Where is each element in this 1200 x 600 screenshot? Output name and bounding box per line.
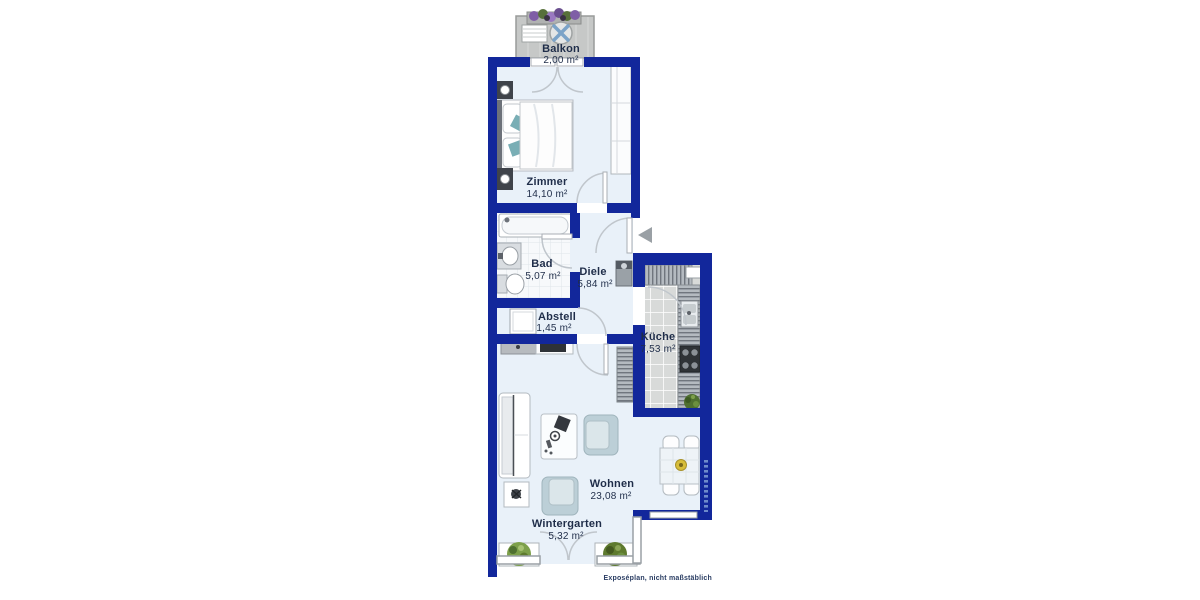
svg-text:Abstell: Abstell	[538, 311, 576, 323]
svg-text:2,00 m²: 2,00 m²	[543, 55, 579, 66]
svg-text:Balkon: Balkon	[542, 43, 580, 55]
plan-caption: Exposéplan, nicht maßstäblich	[604, 575, 713, 582]
room-label-abstell: Abstell 1,45 m²	[536, 311, 576, 334]
svg-text:14,10 m²: 14,10 m²	[526, 189, 568, 200]
balcony-table	[550, 22, 572, 44]
coffee-table-symbol	[541, 414, 577, 459]
kitchen-sink-symbol	[681, 301, 698, 327]
vertical-watermark	[704, 460, 708, 512]
svg-text:Diele: Diele	[579, 266, 606, 278]
entrance-arrow-icon	[638, 227, 652, 243]
washing-machine-symbol	[510, 309, 536, 334]
svg-text:1,45 m²: 1,45 m²	[536, 323, 572, 334]
plant-icon	[684, 394, 700, 410]
hall-cabinet	[616, 261, 632, 286]
floor-plant-box	[504, 482, 529, 507]
floor-plan-svg: Balkon 2,00 m² Zimmer 14,10 m² Bad 5,07 …	[0, 0, 1200, 600]
balcony-bench	[522, 25, 547, 42]
svg-text:Wintergarten: Wintergarten	[532, 518, 602, 530]
wardrobe-symbol	[611, 66, 631, 174]
room-label-balkon: Balkon 2,00 m²	[542, 43, 580, 66]
dining-set	[660, 436, 699, 495]
sofa-symbol	[499, 393, 530, 478]
svg-text:7,53 m²: 7,53 m²	[640, 344, 676, 355]
svg-text:Bad: Bad	[531, 258, 552, 270]
svg-text:Küche: Küche	[641, 331, 676, 343]
sink-symbol	[497, 243, 521, 269]
svg-text:5,32 m²: 5,32 m²	[548, 531, 584, 542]
toilet-symbol	[497, 274, 524, 294]
svg-text:5,07 m²: 5,07 m²	[525, 271, 561, 282]
shelf-unit	[617, 347, 633, 402]
nightstand	[497, 168, 513, 190]
window-symbol	[650, 512, 697, 518]
floorplan-canvas: Balkon 2,00 m² Zimmer 14,10 m² Bad 5,07 …	[0, 0, 1200, 600]
bed-symbol	[497, 100, 573, 171]
nightstand	[497, 81, 513, 99]
svg-text:Wohnen: Wohnen	[590, 478, 634, 490]
armchair-symbol	[542, 477, 578, 515]
stove-symbol	[680, 346, 700, 372]
svg-text:Zimmer: Zimmer	[527, 176, 568, 188]
svg-text:23,08 m²: 23,08 m²	[590, 491, 632, 502]
svg-text:5,84 m²: 5,84 m²	[577, 279, 613, 290]
armchair-symbol	[584, 415, 618, 455]
